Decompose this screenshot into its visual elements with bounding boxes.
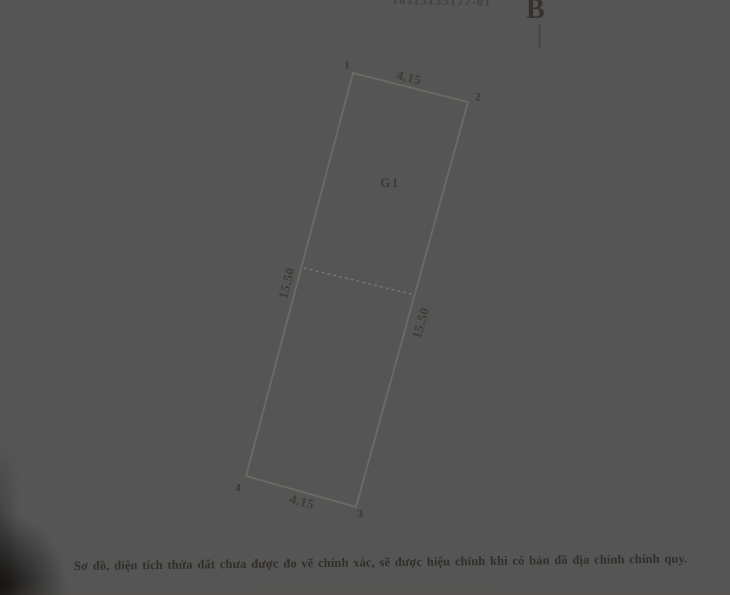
plot-division-dashed-line bbox=[304, 268, 415, 295]
corner-label-2: 2 bbox=[475, 90, 481, 105]
corner-label-1: 1 bbox=[344, 58, 350, 73]
scan-shadow-bottom-edge bbox=[0, 581, 730, 595]
plot-label: G1 bbox=[380, 175, 400, 191]
corner-label-3: 3 bbox=[357, 507, 363, 522]
scanned-land-sketch-page: 10113133177-01 B 1 2 3 4 4.15 4.15 15.50… bbox=[0, 0, 730, 595]
plot-drawing bbox=[0, 0, 730, 595]
scan-shadow-bottom-left bbox=[0, 448, 90, 595]
corner-label-4: 4 bbox=[235, 481, 241, 496]
